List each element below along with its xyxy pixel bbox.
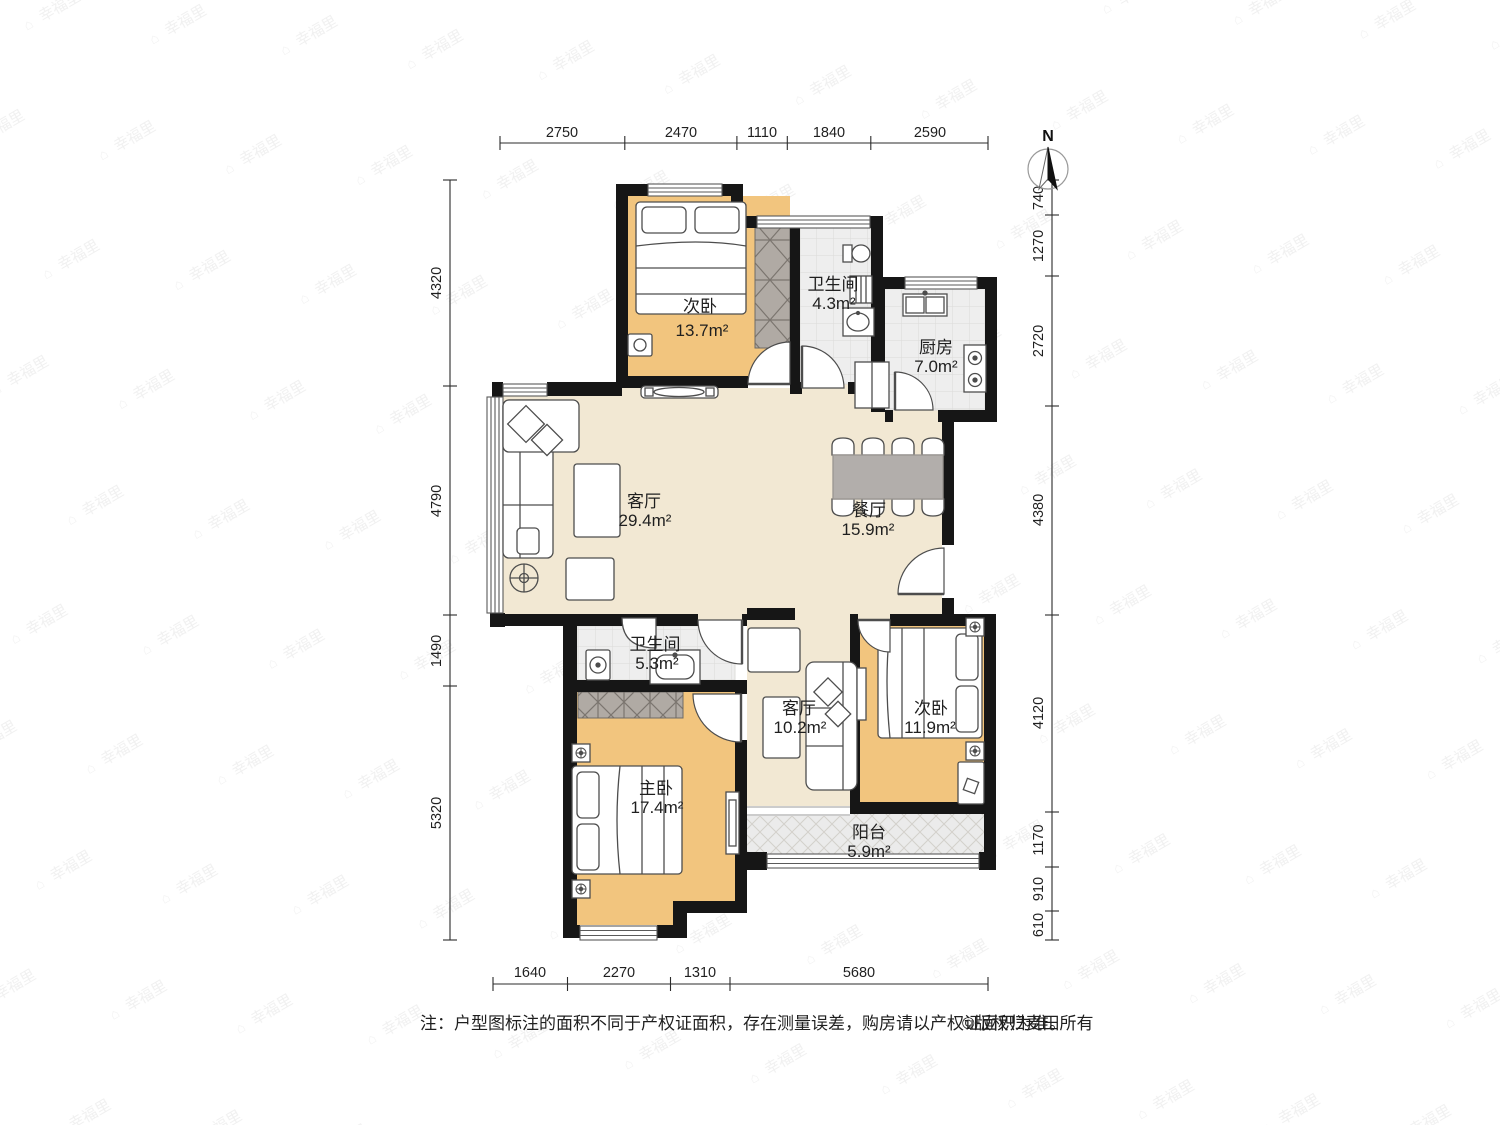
dim-right-7: 910 bbox=[1031, 877, 1047, 901]
dim-left-2: 4790 bbox=[429, 485, 445, 517]
dim-right-5: 4120 bbox=[1031, 697, 1047, 729]
room-label-dining: 餐厅 bbox=[852, 501, 886, 520]
tv-stand-master-icon bbox=[726, 792, 739, 854]
dim-top-4: 1840 bbox=[813, 125, 845, 141]
wardrobe-master bbox=[578, 692, 683, 718]
dim-bottom-4: 5680 bbox=[843, 965, 875, 981]
nightstand-bedroom-right-top-icon bbox=[966, 618, 984, 636]
dim-right-4: 4380 bbox=[1031, 494, 1047, 526]
bay-window-living bbox=[487, 397, 503, 613]
room-label-kitchen: 厨房 bbox=[919, 338, 953, 357]
room-area-master: 17.4m² bbox=[631, 798, 684, 817]
north-label: N bbox=[1042, 128, 1054, 145]
dim-bottom-1: 1640 bbox=[514, 965, 546, 981]
side-table-bedroom-top-icon bbox=[628, 334, 652, 356]
room-label-bath-mid: 卫生间 bbox=[630, 635, 681, 654]
tv-stand-living-icon bbox=[641, 386, 718, 398]
dim-top-3: 1110 bbox=[747, 125, 777, 141]
room-area-living: 29.4m² bbox=[619, 511, 672, 530]
footer-note: 注：户型图标注的面积不同于产权证面积，存在测量误差，购房请以产权证面积为准。 ©… bbox=[420, 1014, 1094, 1033]
desk-bedroom-right-icon bbox=[958, 762, 984, 804]
window-bath-top bbox=[757, 216, 870, 228]
window-bedroom-top bbox=[648, 184, 722, 196]
room-area-kitchen: 7.0m² bbox=[914, 357, 958, 376]
room-label-family: 客厅 bbox=[782, 699, 816, 718]
room-label-living: 客厅 bbox=[627, 492, 661, 511]
room-area-bath-mid: 5.3m² bbox=[635, 654, 679, 673]
window-kitchen bbox=[905, 277, 977, 289]
washer-bath-mid-icon bbox=[586, 650, 610, 680]
dim-bottom-2: 2270 bbox=[603, 965, 635, 981]
room-label-bedroom-right: 次卧 bbox=[914, 699, 948, 718]
kitchen-sink-icon bbox=[903, 291, 947, 316]
dim-left-4: 5320 bbox=[429, 797, 445, 829]
balcony-sill bbox=[747, 806, 850, 816]
living-bench-icon bbox=[566, 558, 614, 600]
room-area-bedroom-top: 13.7m² bbox=[676, 321, 729, 340]
window-living-top bbox=[503, 384, 547, 396]
room-area-dining: 15.9m² bbox=[842, 520, 895, 539]
nightstand-master-bottom-icon bbox=[572, 880, 590, 898]
dim-right-3: 2720 bbox=[1031, 325, 1047, 357]
floorplan-canvas: ⌂ 幸福里 ⌂ 幸福里 bbox=[0, 0, 1500, 1125]
room-area-bath-top: 4.3m² bbox=[812, 294, 856, 313]
dim-bottom-3: 1310 bbox=[684, 965, 716, 981]
floor-lamp-icon bbox=[510, 564, 538, 592]
room-area-balcony: 5.9m² bbox=[847, 842, 891, 861]
dim-top-5: 2590 bbox=[914, 125, 946, 141]
stove-icon bbox=[964, 345, 986, 392]
room-label-master: 主卧 bbox=[639, 779, 673, 798]
dim-right-6: 1170 bbox=[1031, 824, 1047, 855]
coffee-table-icon bbox=[574, 464, 620, 537]
room-label-bedroom-top: 次卧 bbox=[683, 297, 717, 316]
bay-window-master bbox=[580, 926, 657, 940]
dim-right-2: 1270 bbox=[1031, 230, 1047, 262]
room-area-family: 10.2m² bbox=[774, 718, 827, 737]
wardrobe-bedroom-top bbox=[755, 228, 790, 348]
room-area-bedroom-right: 11.9m² bbox=[904, 718, 956, 737]
room-label-bath-top: 卫生间 bbox=[808, 275, 859, 294]
dim-top-2: 2470 bbox=[665, 125, 697, 141]
fridge-icon bbox=[855, 362, 889, 408]
dim-top-1: 2750 bbox=[546, 125, 578, 141]
nightstand-bedroom-right-bottom-icon bbox=[966, 742, 984, 760]
toilet-bath-top-icon bbox=[843, 245, 870, 262]
nightstand-master-top-icon bbox=[572, 744, 590, 762]
dim-right-8: 610 bbox=[1031, 913, 1047, 937]
floorplan-page: ⌂ 幸福里 ⌂ 幸福里 bbox=[0, 0, 1500, 1125]
table-family-icon bbox=[748, 628, 800, 672]
copyright-text: ©版权归麦田所有 bbox=[962, 1014, 1094, 1033]
dim-left-1: 4320 bbox=[429, 267, 445, 299]
dim-left-3: 1490 bbox=[429, 635, 445, 667]
tv-family-icon bbox=[857, 668, 866, 720]
room-label-balcony: 阳台 bbox=[852, 823, 886, 842]
